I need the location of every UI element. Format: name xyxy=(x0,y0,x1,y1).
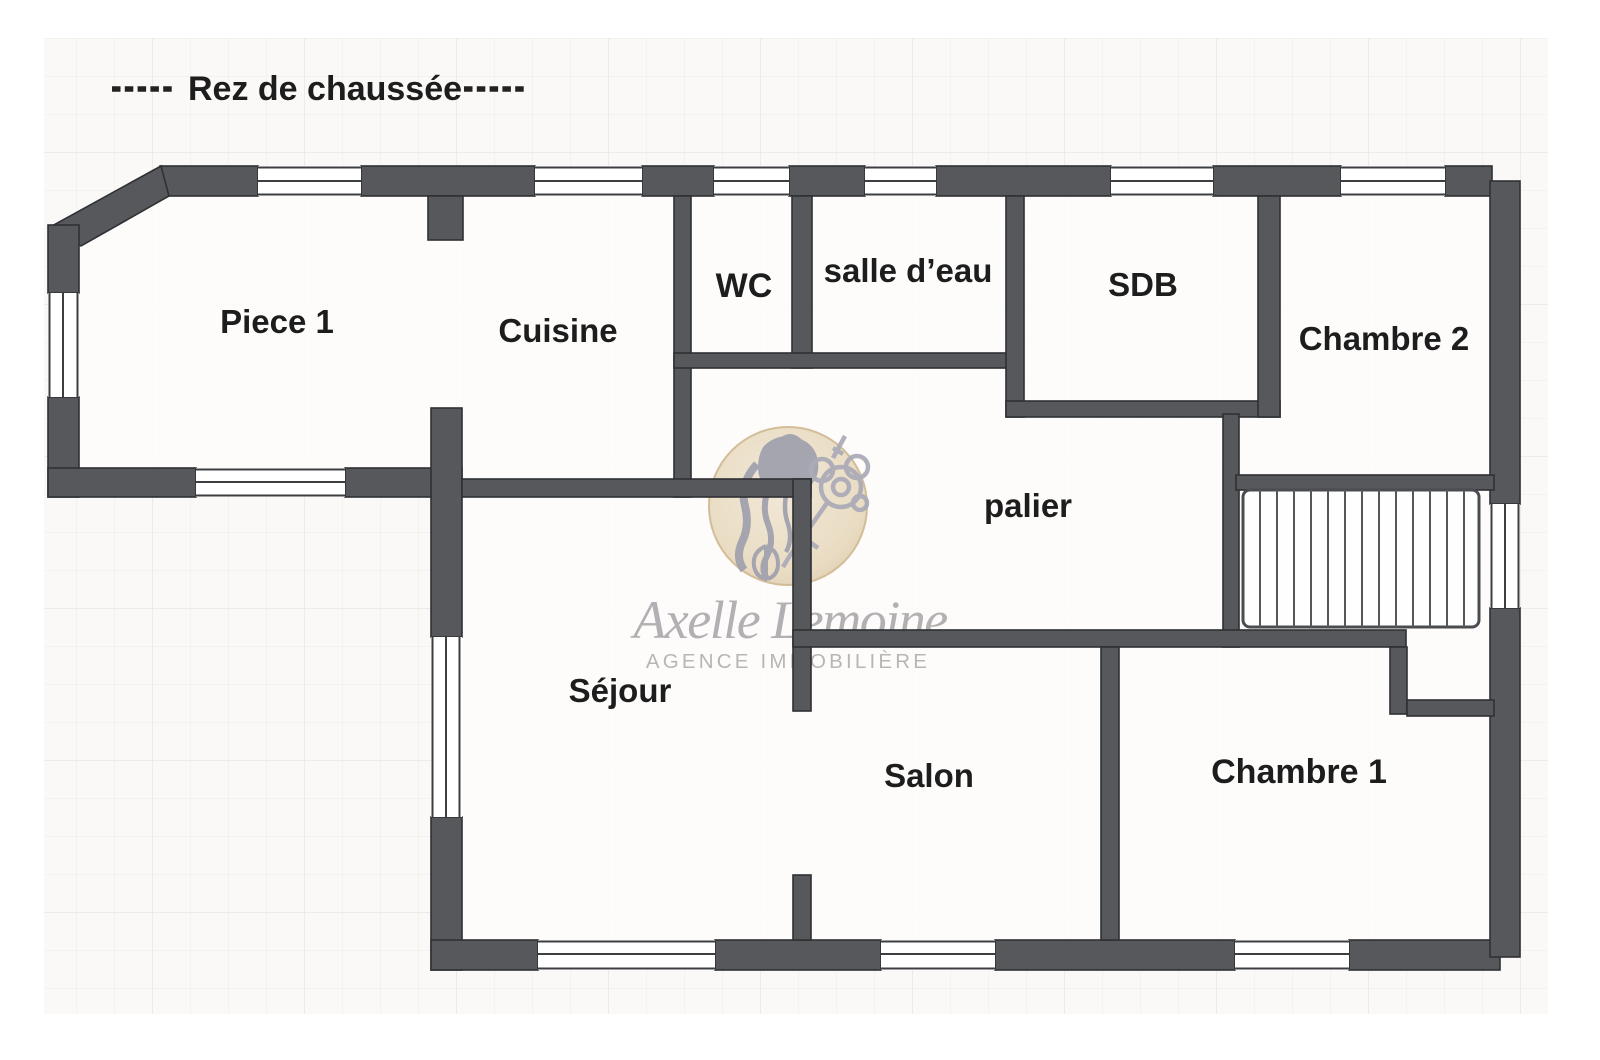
svg-text:Chambre 2: Chambre 2 xyxy=(1299,320,1470,357)
svg-text:Salon: Salon xyxy=(884,757,974,794)
svg-text:Séjour: Séjour xyxy=(569,672,672,709)
svg-text:salle d’eau: salle d’eau xyxy=(824,252,993,289)
svg-text:palier: palier xyxy=(984,487,1072,524)
svg-text:Rez de chaussée: Rez de chaussée xyxy=(188,70,462,108)
svg-text:Chambre 1: Chambre 1 xyxy=(1211,753,1387,791)
svg-text:WC: WC xyxy=(716,267,773,305)
svg-text:Piece 1: Piece 1 xyxy=(220,303,334,340)
svg-text:Cuisine: Cuisine xyxy=(498,312,617,349)
svg-text:SDB: SDB xyxy=(1108,266,1178,303)
svg-text:AGENCE IMMOBILIÈRE: AGENCE IMMOBILIÈRE xyxy=(646,650,930,673)
